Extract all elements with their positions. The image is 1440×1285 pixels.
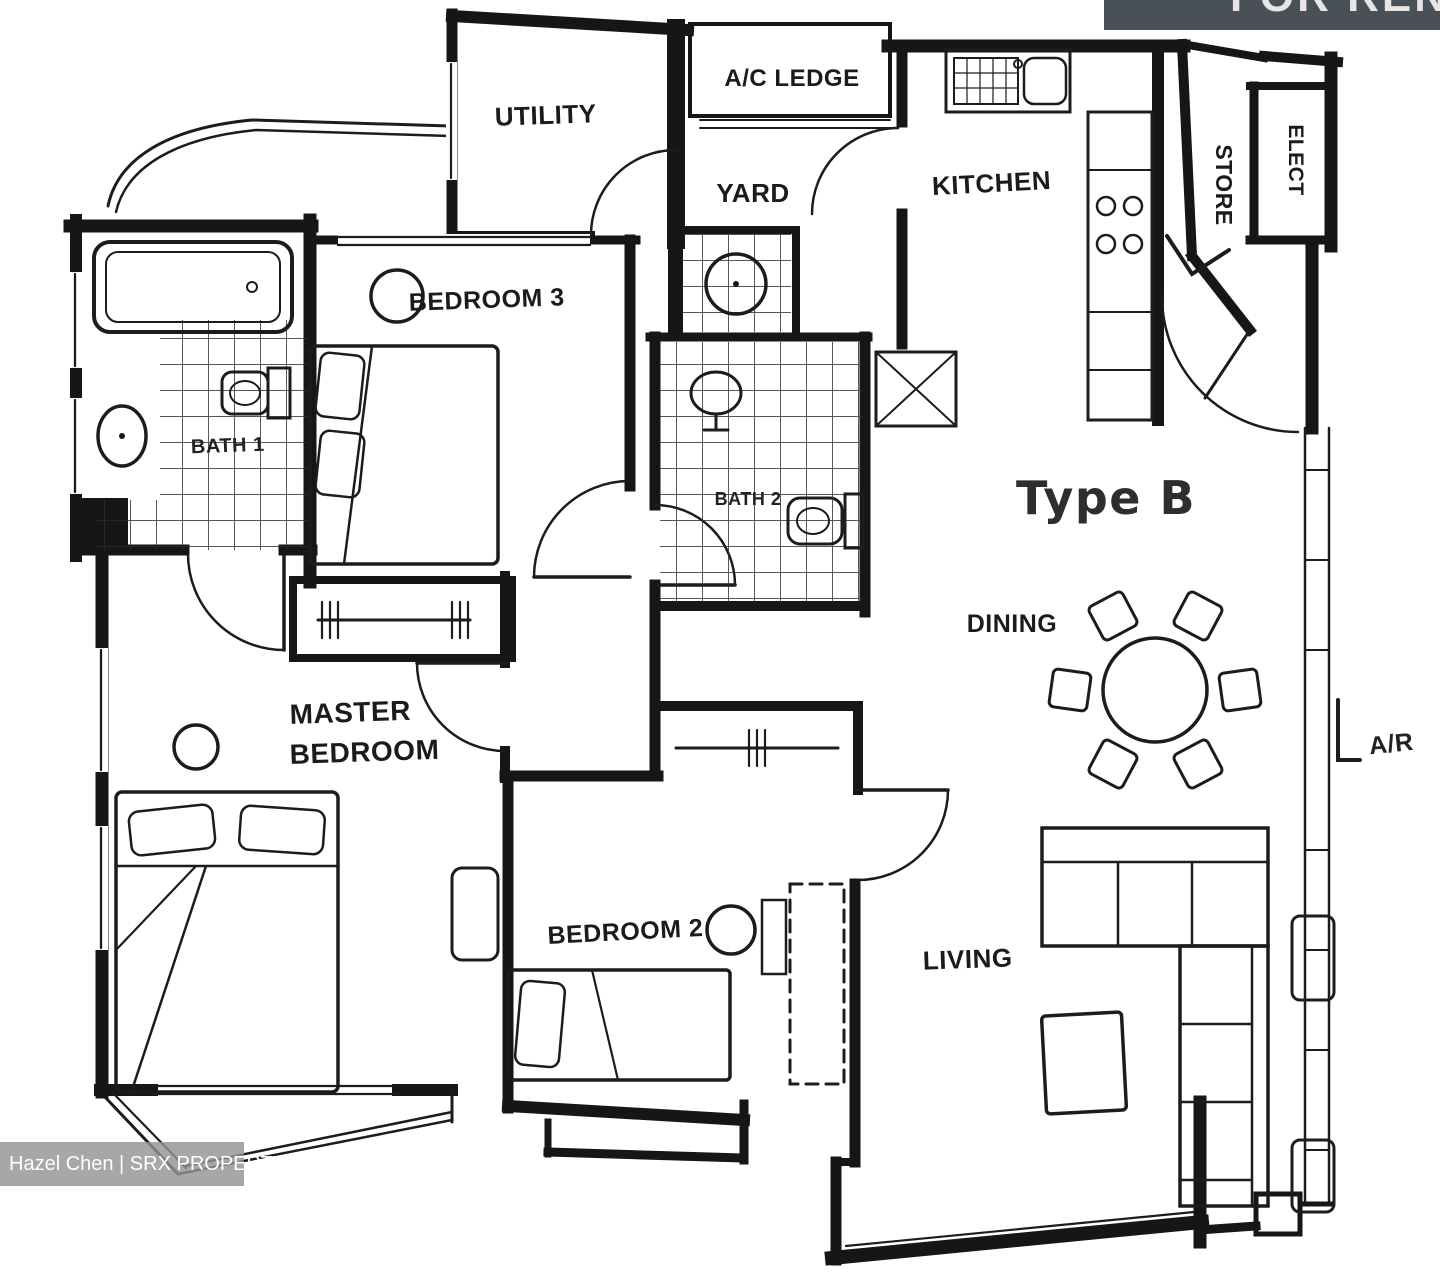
- fan-master: [174, 725, 218, 769]
- window-seats: [1292, 916, 1334, 1212]
- bathtub: [94, 242, 292, 332]
- bed-bedroom3: [310, 346, 498, 564]
- label-type-b: Type B: [1016, 471, 1196, 525]
- wardrobe-bedroom2: [762, 884, 844, 1084]
- bed-master: [116, 792, 338, 1092]
- dining-chairs: [1049, 590, 1262, 789]
- banner-text: FOR RENT: [1230, 0, 1440, 22]
- kitchen-counter: [1088, 112, 1152, 420]
- bath1-sink: [98, 406, 146, 466]
- label-master-line1: MASTER: [289, 695, 411, 730]
- label-master-line2: BEDROOM: [289, 734, 440, 770]
- label-ac-ledge: A/C LEDGE: [724, 65, 859, 92]
- fan-bedroom2: [707, 906, 755, 954]
- coffee-table: [1041, 1012, 1126, 1114]
- floorplan-image: UTILITY A/C LEDGE YARD KITCHEN STORE ELE…: [0, 0, 1440, 1285]
- side-table: [452, 868, 498, 960]
- label-elect: ELECT: [1284, 124, 1307, 195]
- watermark-text: Hazel Chen | SRX PROPERTY: [9, 1153, 286, 1175]
- label-dining: DINING: [967, 610, 1058, 638]
- label-store: STORE: [1211, 144, 1237, 225]
- kitchen-sink: [946, 50, 1070, 112]
- label-utility: UTILITY: [494, 98, 597, 132]
- label-bath1: BATH 1: [191, 434, 265, 459]
- watermark: Hazel Chen | SRX PROPERTY: [0, 1142, 244, 1186]
- listing-banner: FOR RENT: [1104, 0, 1440, 30]
- bed-bedroom2: [508, 970, 730, 1080]
- floorplan-svg: UTILITY A/C LEDGE YARD KITCHEN STORE ELE…: [0, 0, 1440, 1285]
- fridge: [876, 352, 956, 426]
- label-bath2: BATH 2: [715, 489, 782, 509]
- annotation-bracket: [1338, 700, 1360, 760]
- label-yard: YARD: [716, 178, 789, 208]
- sofa: [1042, 828, 1268, 1206]
- label-bedroom2: BEDROOM 2: [547, 914, 704, 950]
- dining-table: [1103, 638, 1207, 742]
- label-living: LIVING: [922, 942, 1013, 975]
- label-kitchen: KITCHEN: [931, 165, 1051, 201]
- label-annotation: A/R: [1368, 728, 1415, 761]
- label-bedroom3: BEDROOM 3: [408, 283, 565, 316]
- stove: [1097, 197, 1142, 253]
